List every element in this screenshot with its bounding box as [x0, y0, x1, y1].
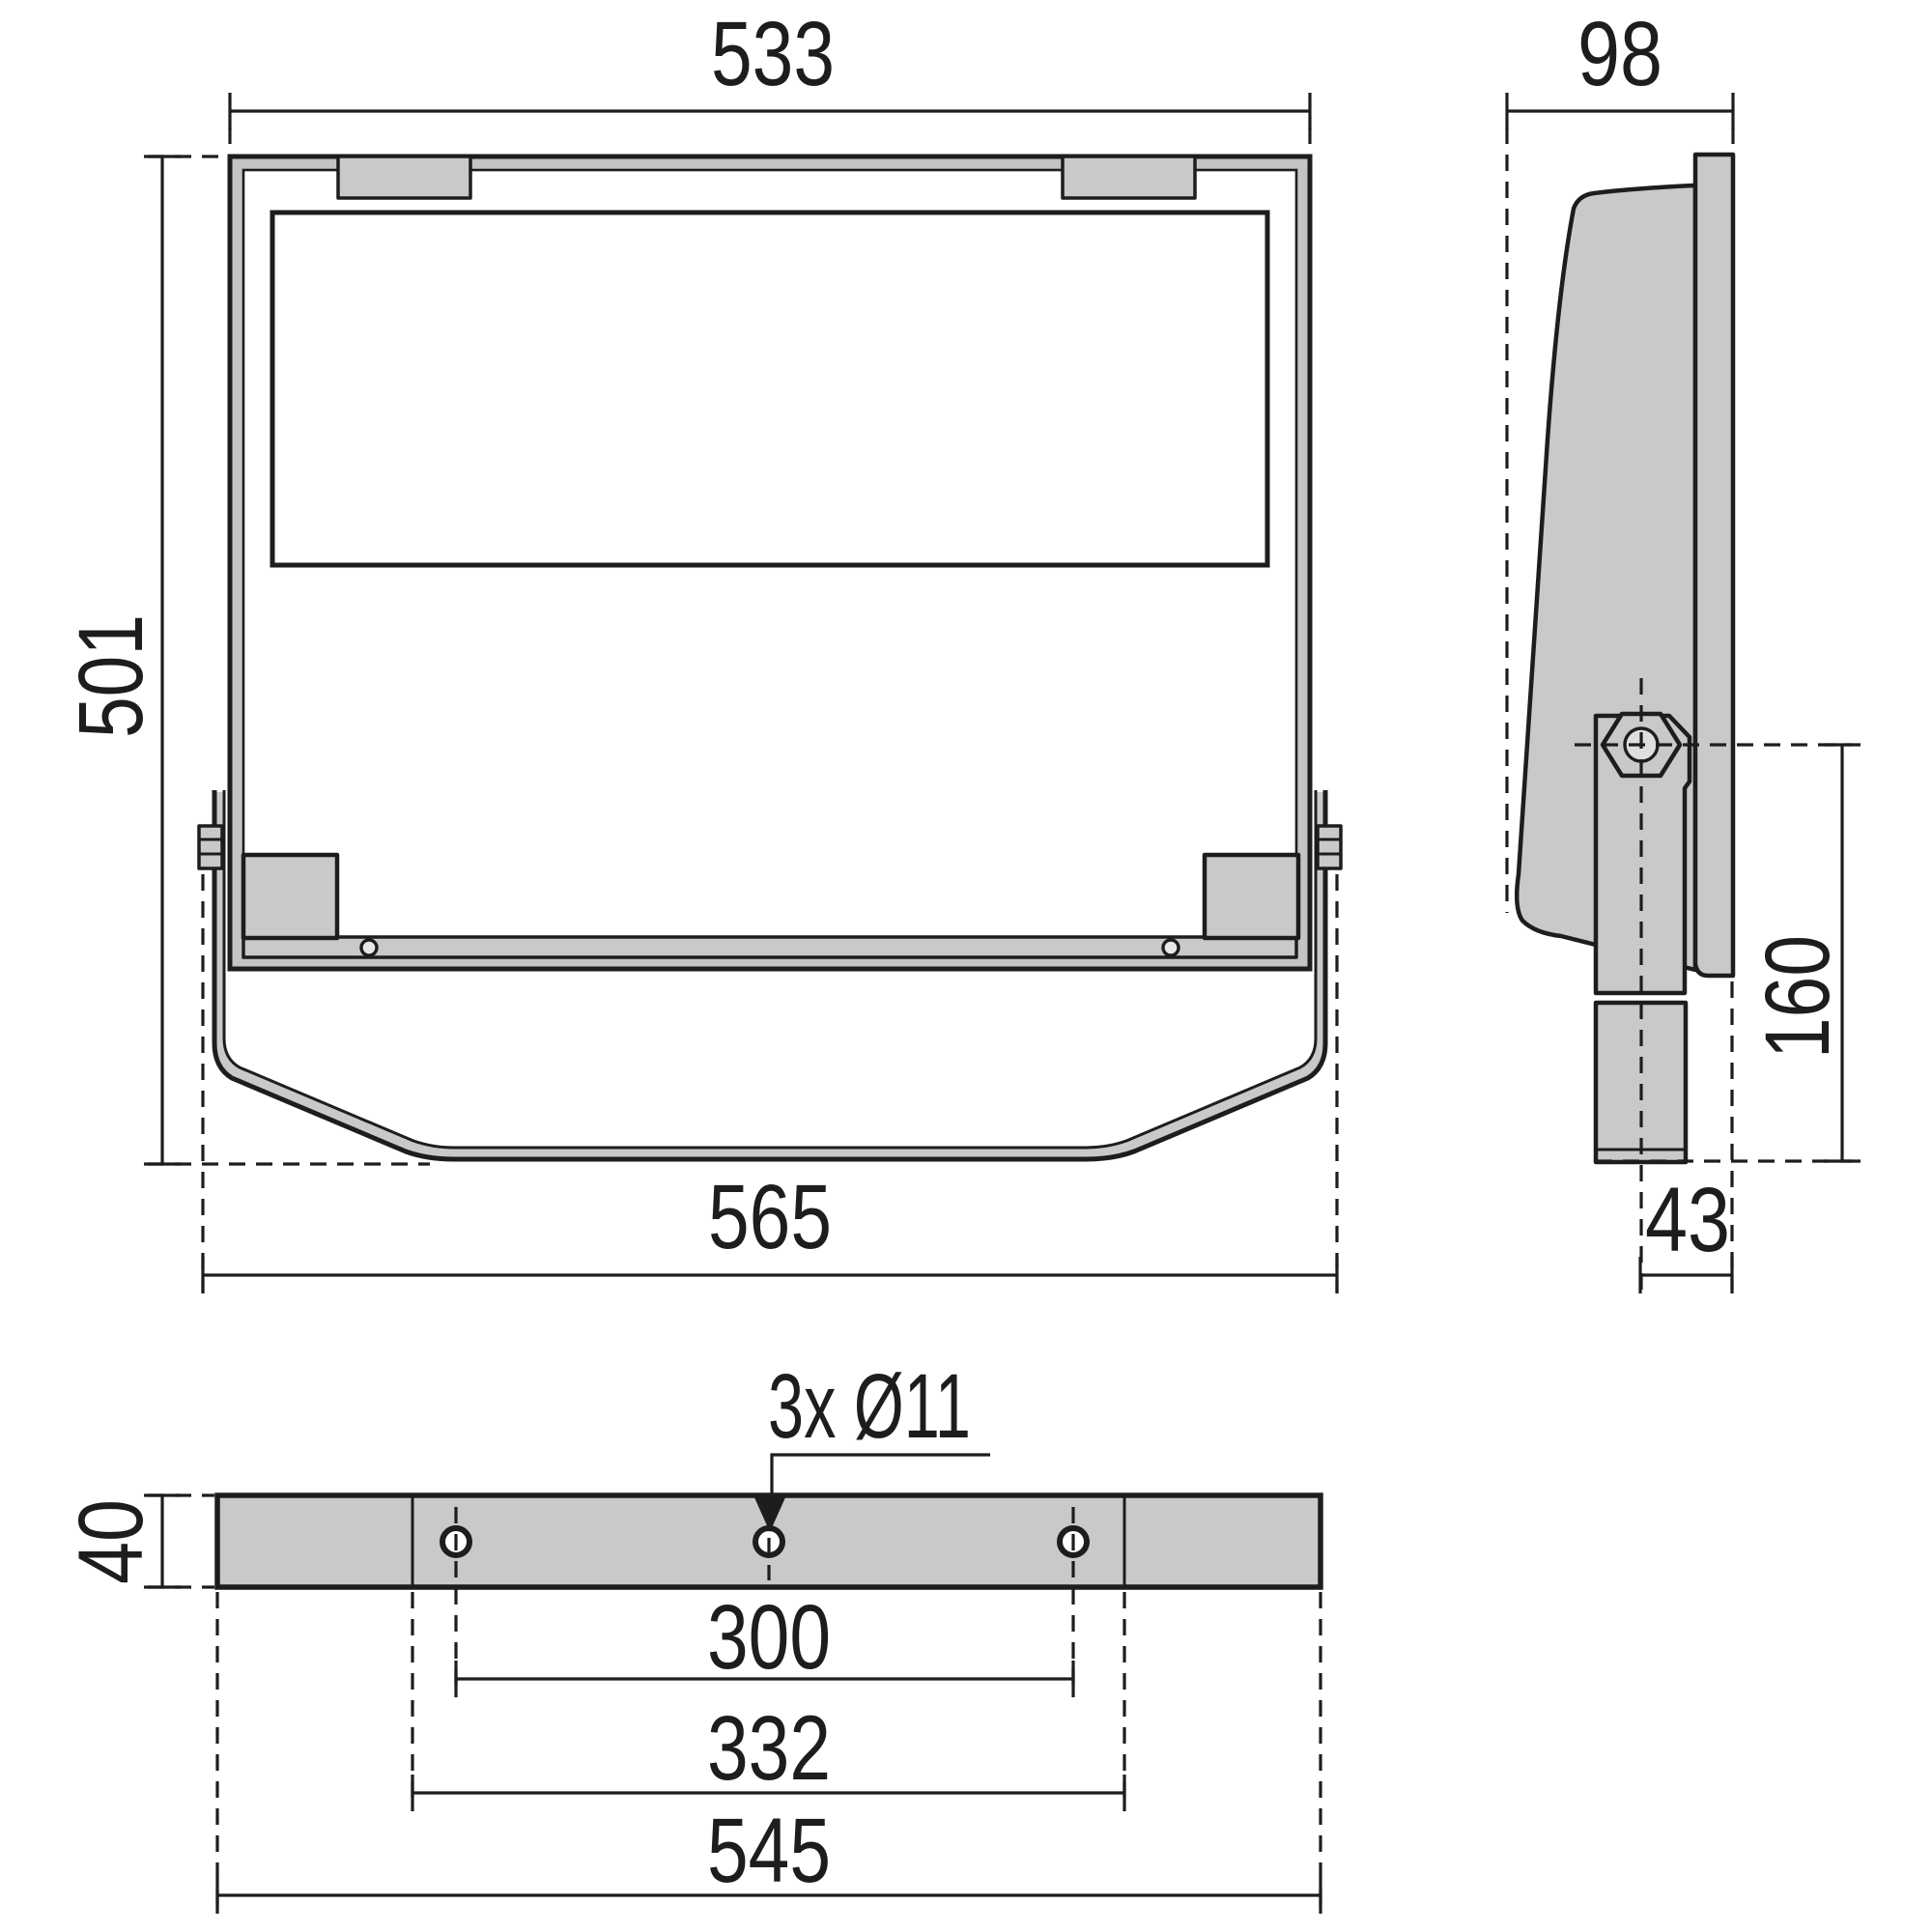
lamp-glass-panel — [272, 213, 1267, 565]
dim-label-40: 40 — [60, 1499, 162, 1584]
side-back-plate — [1695, 155, 1733, 976]
dim-label-533: 533 — [711, 3, 835, 105]
top-clip-right — [1063, 156, 1195, 198]
dim-label-332: 332 — [707, 1697, 831, 1800]
yoke-pivot-bolt-right — [1318, 826, 1341, 868]
tray-screw-right — [1163, 940, 1179, 955]
dim-label-300: 300 — [707, 1586, 831, 1689]
tray-screw-left — [361, 940, 377, 955]
dim-label-545: 545 — [707, 1800, 831, 1902]
dim-bottom-hole-spacing: 300 — [456, 1586, 1073, 1697]
dim-bottom-inner-spacing: 332 — [412, 1697, 1124, 1811]
dim-side-pivot-offset: 43 — [1640, 1169, 1732, 1293]
dim-bottom-bar-height: 40 — [60, 1495, 214, 1587]
dim-label-565: 565 — [708, 1166, 832, 1268]
dim-label-43: 43 — [1645, 1169, 1730, 1271]
dim-front-width-top: 533 — [230, 3, 1310, 155]
front-view: 533 501 565 — [60, 3, 1341, 1293]
dim-label-501: 501 — [60, 614, 162, 738]
corner-block-right — [1205, 855, 1298, 938]
corner-block-left — [243, 855, 337, 938]
top-clip-left — [338, 156, 470, 198]
dim-label-3x11: 3x Ø11 — [768, 1355, 971, 1458]
dim-label-98: 98 — [1577, 3, 1662, 105]
bottom-tray-bar — [243, 937, 1296, 957]
dim-bottom-total-length: 545 — [217, 1800, 1321, 1914]
floodlight-dimension-drawing: 533 501 565 — [0, 0, 1932, 1932]
yoke-pivot-bolt-left — [199, 826, 222, 868]
dim-side-pivot-to-bottom: 160 — [1747, 745, 1861, 1161]
bottom-view: 3x Ø11 40 300 33 — [60, 1355, 1321, 1914]
dim-label-160: 160 — [1747, 935, 1849, 1059]
side-view: 98 160 43 — [1507, 3, 1861, 1293]
technical-drawing-page: 533 501 565 — [0, 0, 1932, 1932]
